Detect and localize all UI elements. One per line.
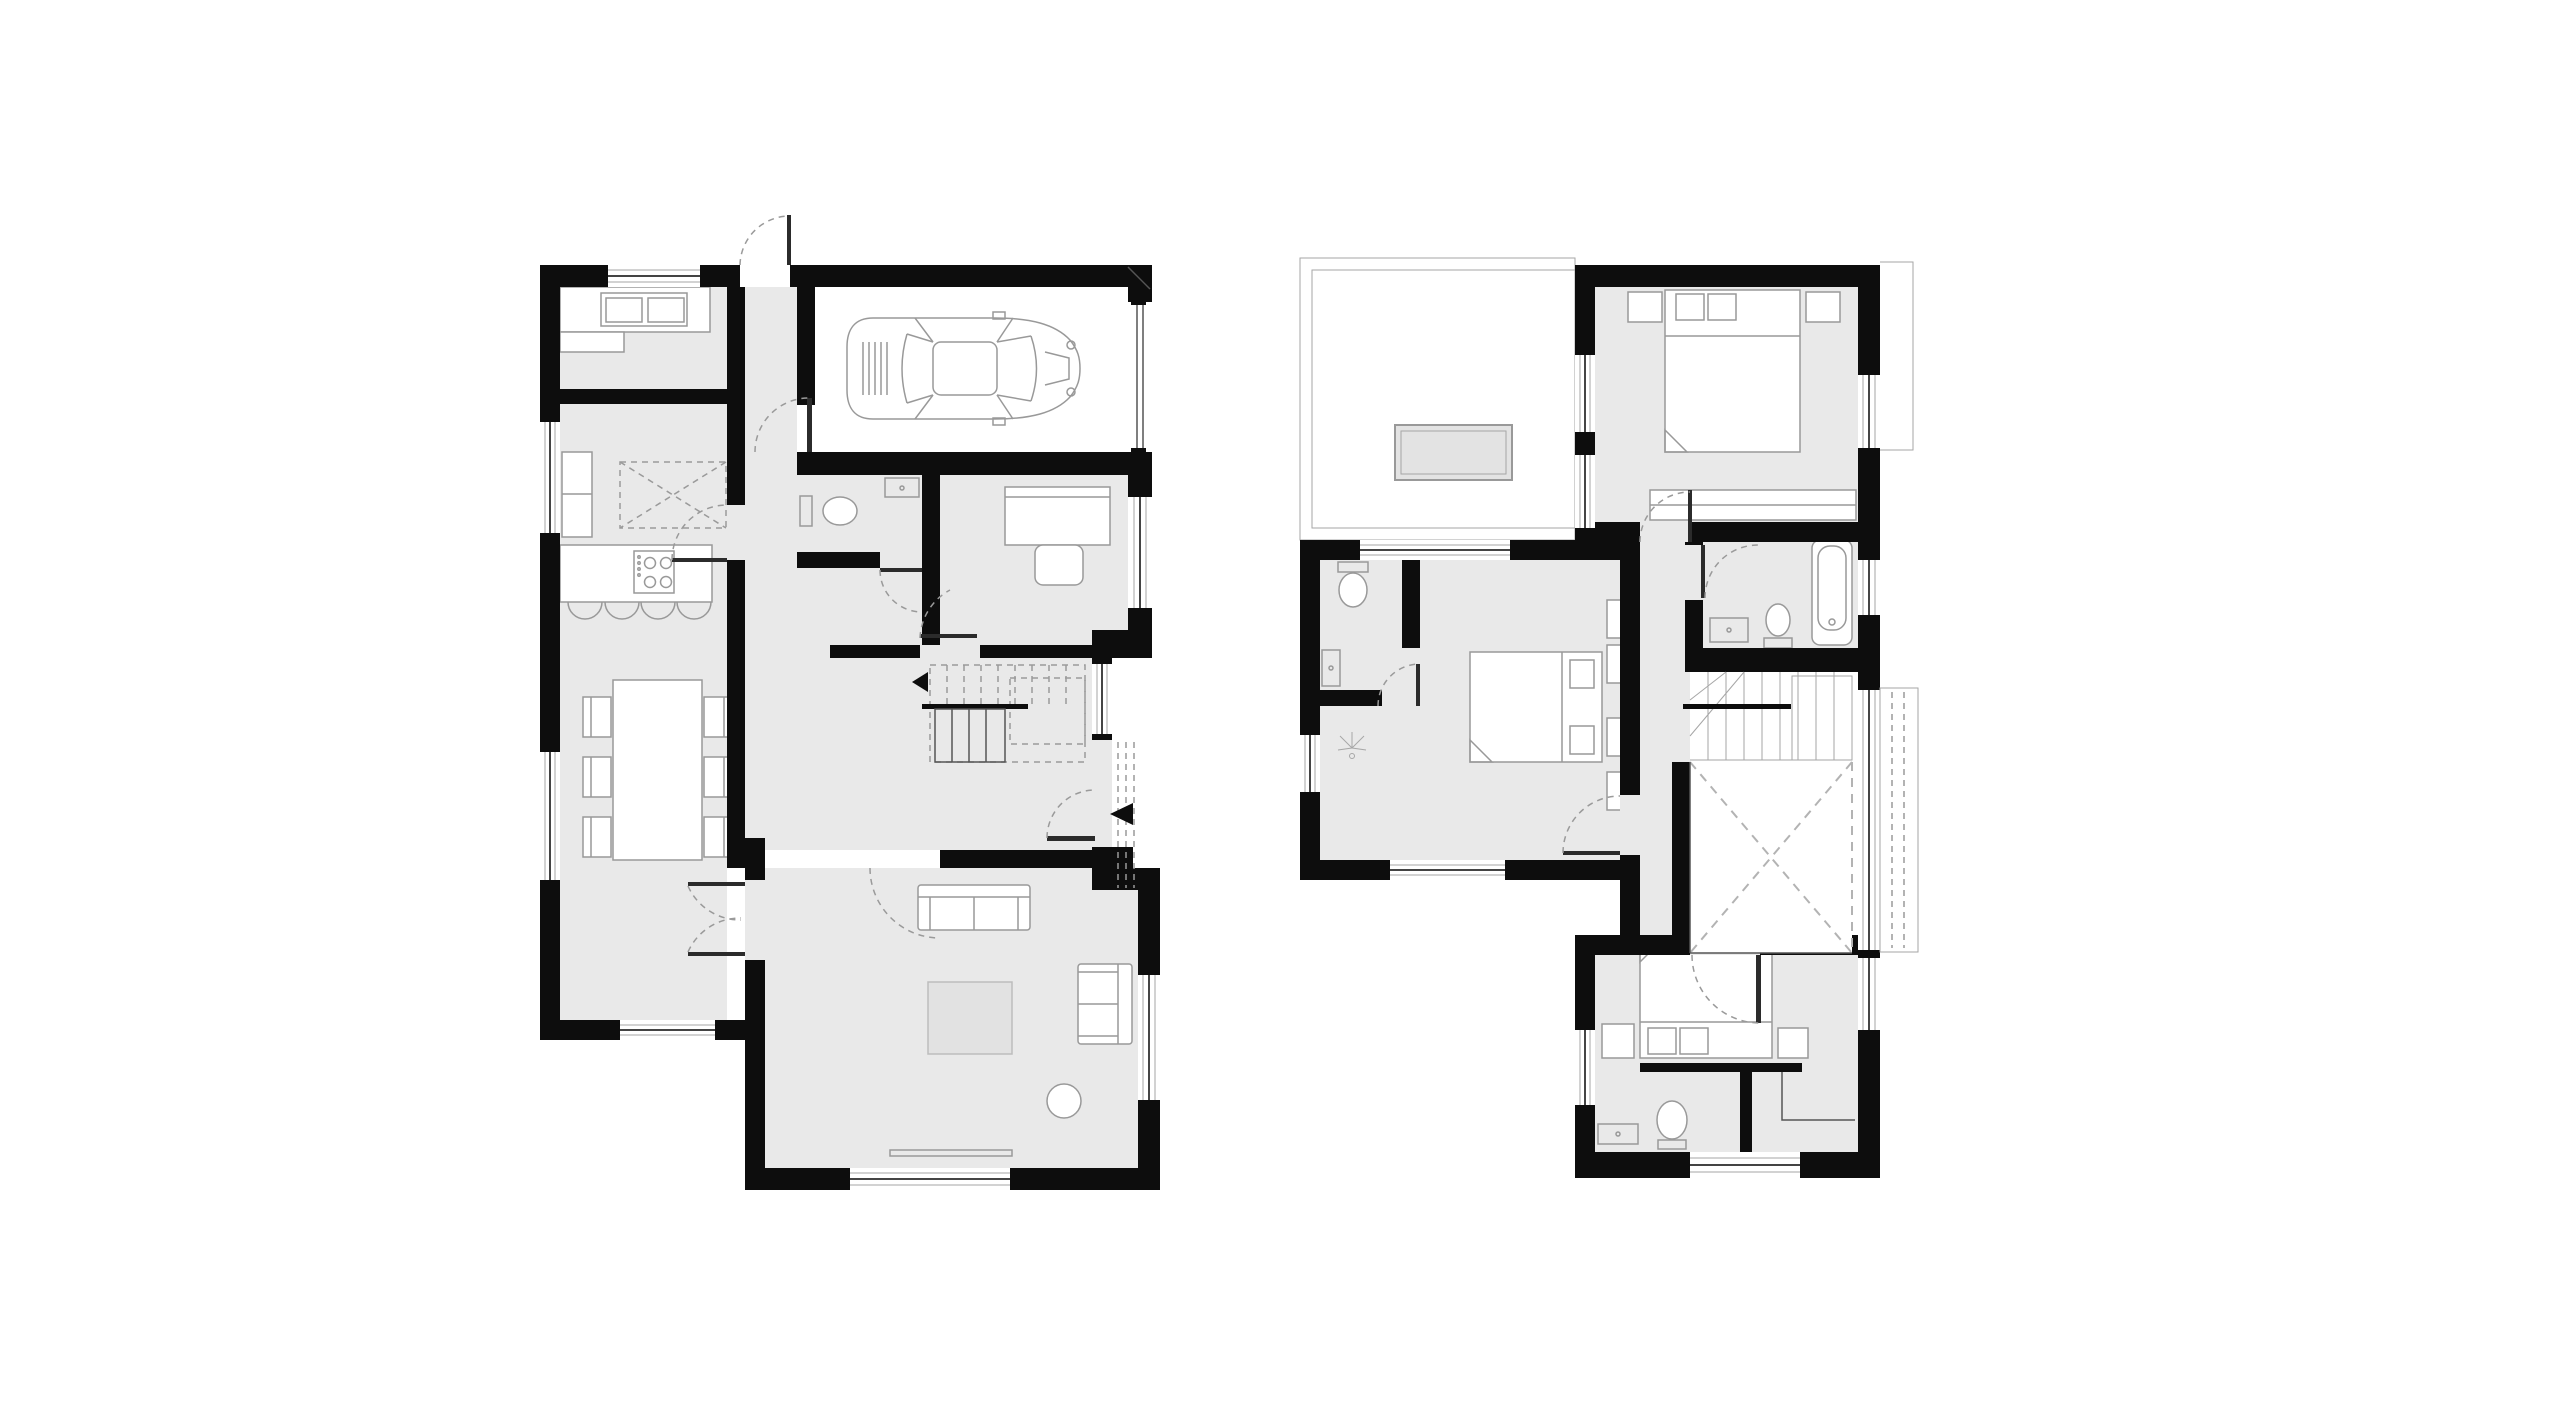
stair-hall <box>745 658 1092 850</box>
ground-floor-plan <box>540 215 1160 1190</box>
first-floor-plan <box>1300 258 1918 1178</box>
dining-table <box>613 680 702 860</box>
window <box>540 422 560 533</box>
floor-plan-drawing <box>0 0 2560 1417</box>
stair-treads <box>1690 672 1852 760</box>
window <box>1575 1030 1595 1105</box>
car-icon <box>847 312 1080 425</box>
window <box>1690 1152 1800 1178</box>
master-bed <box>1665 290 1800 452</box>
nightstand <box>1806 292 1840 322</box>
nightstand <box>1628 292 1662 322</box>
stair-glazing <box>1858 690 1880 950</box>
window <box>1858 958 1880 1030</box>
window <box>540 752 560 880</box>
desk-chair <box>1035 545 1083 585</box>
bed-3 <box>1640 940 1772 1058</box>
window <box>620 1020 715 1040</box>
back-door <box>740 215 791 265</box>
juliet-balcony <box>1880 688 1918 952</box>
bathtub-icon <box>1812 540 1852 645</box>
skylight-icon <box>1395 425 1512 480</box>
utility-worktop-return <box>560 332 624 352</box>
window <box>1138 975 1160 1100</box>
window <box>1575 355 1595 432</box>
entrance-inset <box>1092 740 1112 850</box>
garage-roof-outline <box>1880 262 1913 450</box>
bed-2 <box>1470 652 1602 762</box>
window <box>1390 860 1505 880</box>
stair-cut-line <box>1683 704 1791 709</box>
window <box>1858 560 1880 615</box>
nightstand <box>1602 1024 1634 1058</box>
plant-icon <box>1047 1084 1081 1118</box>
wardrobe <box>1650 490 1856 520</box>
floor-plan-sheet <box>0 0 2560 1417</box>
toilet-icon <box>823 497 857 525</box>
sidelight-window <box>1092 664 1112 734</box>
window <box>1858 375 1880 448</box>
window <box>608 265 700 287</box>
window <box>1128 497 1152 608</box>
window <box>1575 455 1595 528</box>
entrance-arrow-icon <box>1110 803 1133 825</box>
rear-corridor <box>745 287 797 477</box>
void-x <box>1690 762 1852 953</box>
desk <box>1005 487 1110 545</box>
nightstand <box>1778 1028 1808 1058</box>
rug <box>928 982 1012 1054</box>
window <box>1360 540 1510 560</box>
ensuite-toilet <box>1657 1101 1687 1139</box>
window <box>850 1168 1010 1190</box>
staircase-first <box>1683 672 1918 953</box>
window <box>1300 735 1320 792</box>
